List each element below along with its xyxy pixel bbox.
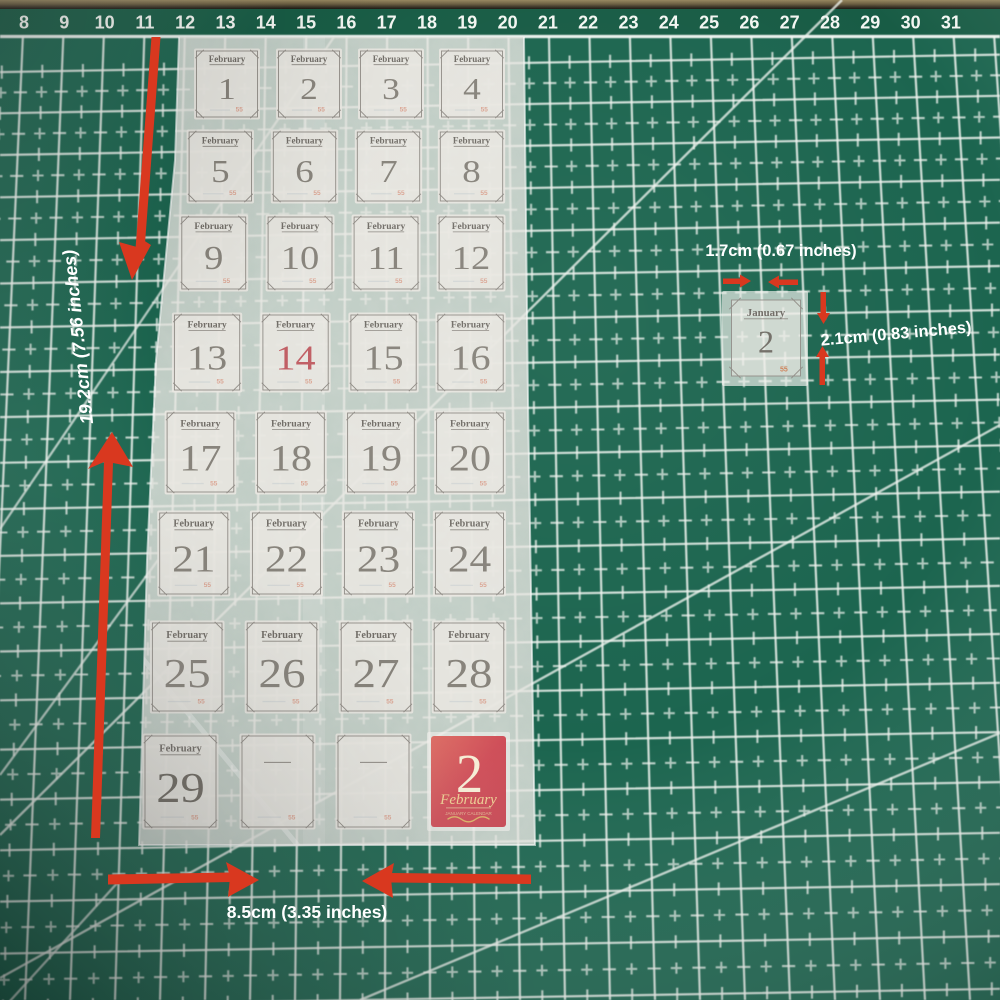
svg-text:8.5cm (3.35 inches): 8.5cm (3.35 inches) — [227, 902, 388, 922]
svg-text:1.7cm (0.67 inches): 1.7cm (0.67 inches) — [705, 242, 856, 260]
